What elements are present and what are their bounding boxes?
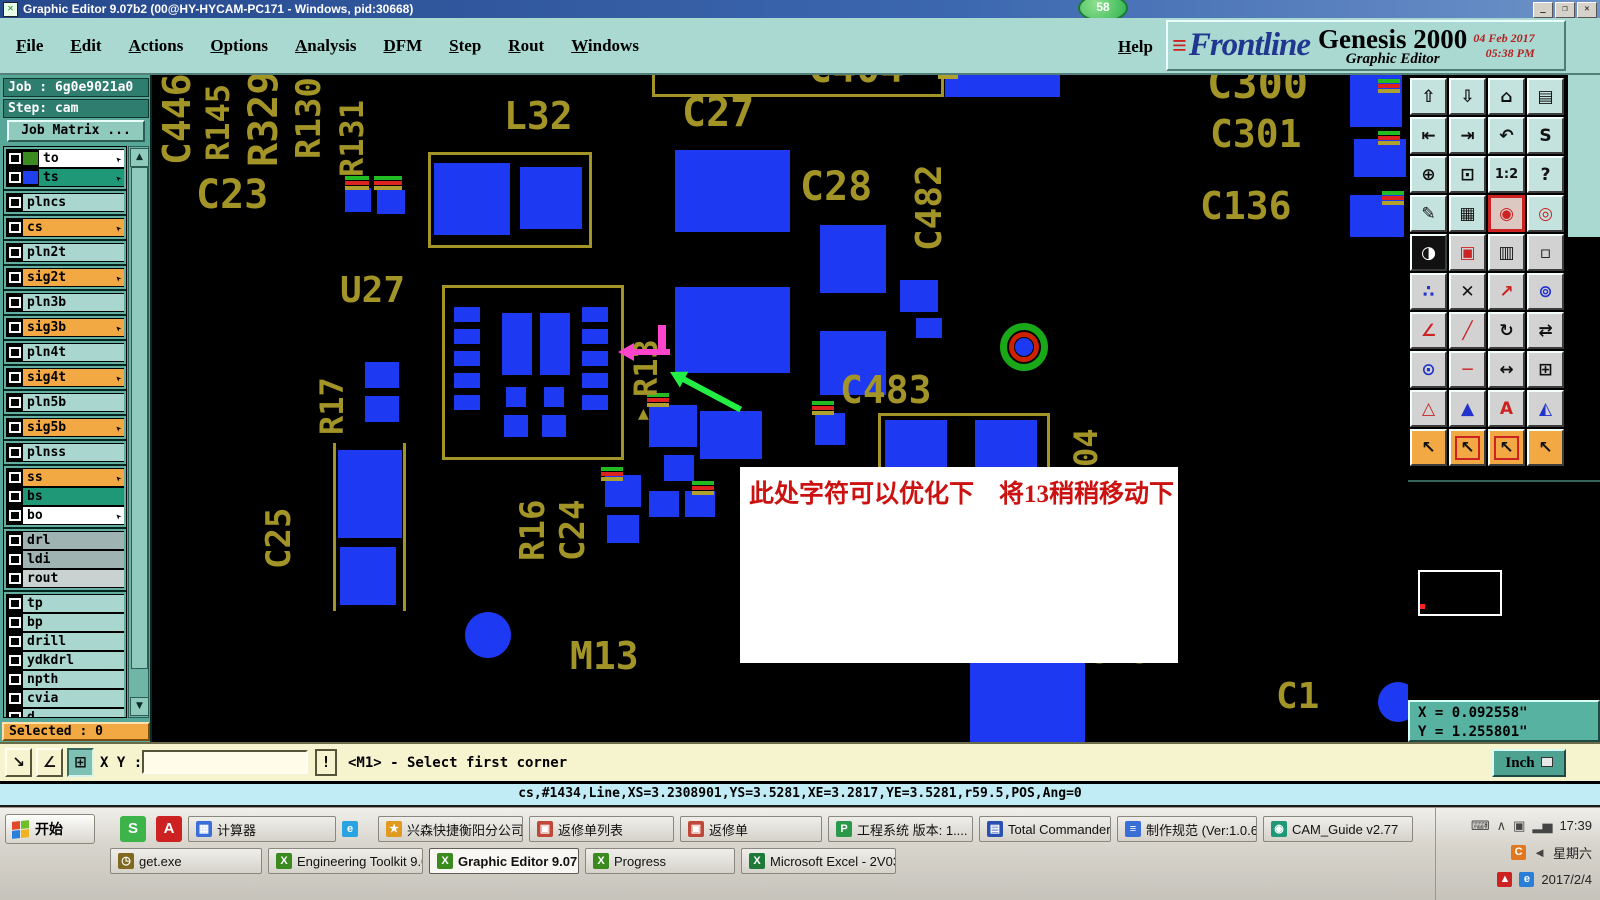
- taskbar-button-fanxiudan[interactable]: ▣返修单: [680, 816, 822, 842]
- measure-angle-button[interactable]: ∠: [36, 748, 63, 777]
- layer-name: cs: [27, 219, 116, 236]
- layer-label: cvia: [23, 690, 124, 707]
- status-bar: cs,#1434,Line,XS=3.2308901,YS=3.5281,XE=…: [0, 781, 1600, 807]
- pcb-pad[interactable]: [916, 318, 942, 338]
- menu-actions[interactable]: Actions: [129, 36, 184, 56]
- layer-label: ldi: [23, 551, 124, 568]
- layer-label: drill: [23, 633, 124, 650]
- layer-row-pln5b[interactable]: pln5b: [6, 393, 124, 412]
- product-name: Genesis 2000: [1318, 24, 1467, 55]
- layer-checkbox[interactable]: [6, 470, 23, 486]
- pcb-pad[interactable]: [454, 307, 480, 322]
- layer-group: to➤ts➤: [4, 147, 126, 189]
- taskbar-button-calculator[interactable]: ▦计算器: [188, 816, 336, 842]
- pcb-pad[interactable]: [454, 329, 480, 344]
- layer-row-sig2t[interactable]: sig2t➤: [6, 268, 124, 287]
- fanxiudan-icon: ▣: [688, 821, 704, 837]
- layer-checkbox[interactable]: [6, 270, 23, 286]
- menu-bar: FileEditActionsOptionsAnalysisDFMStepRou…: [0, 18, 1600, 75]
- layer-checkbox[interactable]: [6, 634, 23, 650]
- layer-checkbox[interactable]: [6, 170, 23, 186]
- pcb-label-04[interactable]: 04: [1070, 411, 1102, 467]
- tray-icon[interactable]: ∧: [1497, 818, 1507, 834]
- menu-step[interactable]: Step: [449, 36, 481, 56]
- tray-date: 2017/2/4: [1541, 872, 1592, 887]
- tray-icon[interactable]: e: [1519, 872, 1534, 887]
- graphic-editor-icon: X: [437, 853, 453, 869]
- layer-group: pln3b: [4, 291, 126, 314]
- layer-checkbox[interactable]: [6, 533, 23, 549]
- quick-launch-s-icon[interactable]: S: [120, 816, 146, 842]
- minimize-button[interactable]: _: [1533, 2, 1553, 18]
- pcb-pad[interactable]: [649, 405, 697, 447]
- net-view-button[interactable]: ◎: [1527, 195, 1564, 232]
- taskbar-button-ie-icon[interactable]: e: [342, 816, 372, 842]
- brand-panel: ≡ Frontline Genesis 2000 Graphic Editor …: [1166, 20, 1566, 71]
- layer-name: pln5b: [27, 394, 124, 411]
- xy-label: X Y :: [100, 755, 142, 771]
- job-matrix-button[interactable]: Job Matrix ...: [7, 120, 145, 142]
- layer-row-rout[interactable]: rout: [6, 569, 124, 588]
- layer-row-plnss[interactable]: plnss: [6, 443, 124, 462]
- layer-label: sig4t➤: [23, 369, 124, 386]
- selection-tick-marks: [692, 481, 714, 496]
- layer-label: sig2t➤: [23, 269, 124, 286]
- app-window: ✕ Graphic Editor 9.07b2 (00@HY-HYCAM-PC1…: [0, 0, 1600, 900]
- taskbar-row: ◷get.exeXEngineering Toolkit 9.07...XGra…: [110, 848, 896, 874]
- angle-measure-button[interactable]: ∠: [1410, 312, 1447, 349]
- pcb-pad[interactable]: [520, 167, 582, 229]
- coordinate-readout: X = 0.092558" Y = 1.255801": [1408, 700, 1600, 742]
- pcb-pad[interactable]: [582, 329, 608, 344]
- current-time: 05:38 PM: [1473, 46, 1534, 61]
- pcb-pad[interactable]: [365, 396, 399, 422]
- measure-distance-button[interactable]: ↔: [1488, 351, 1525, 388]
- pcb-pad[interactable]: [607, 515, 639, 543]
- zoom-area-button[interactable]: ▣: [1449, 234, 1486, 271]
- layer-checkbox[interactable]: [6, 395, 23, 411]
- grid-snap-button[interactable]: ⊞: [67, 748, 94, 777]
- menu-rout[interactable]: Rout: [508, 36, 544, 56]
- layer-label: npth: [23, 671, 124, 688]
- pcb-label-C28[interactable]: C28: [800, 167, 872, 207]
- layer-checkbox[interactable]: [6, 596, 23, 612]
- slope-measure-button[interactable]: ╱: [1449, 312, 1486, 349]
- selection-tick-marks: [345, 176, 369, 191]
- zoom-ratio-1-2-button[interactable]: 1:2: [1488, 156, 1525, 193]
- layer-group: pln5b: [4, 391, 126, 414]
- delete-mode-button[interactable]: ✕: [1449, 273, 1486, 310]
- layer-row-ts[interactable]: ts➤: [6, 168, 124, 187]
- layer-group: ss➤bsbo➤: [4, 466, 126, 527]
- view-left-button[interactable]: ⇤: [1410, 117, 1447, 154]
- layer-row-bs[interactable]: bs: [6, 487, 124, 506]
- layer-row-npth[interactable]: npth: [6, 670, 124, 689]
- layer-checkbox[interactable]: [6, 445, 23, 461]
- menu-windows[interactable]: Windows: [571, 36, 639, 56]
- pcb-pad[interactable]: [675, 287, 790, 373]
- selection-tick-marks: [938, 75, 958, 80]
- selection-tick-marks: [374, 176, 402, 191]
- panel-strip: [1568, 75, 1600, 237]
- taskbar: 开始SA▦计算器e★兴森快捷衡阳分公司...▣返修单列表▣返修单P工程系统 版本…: [0, 807, 1600, 900]
- layer-row-sig5b[interactable]: sig5b➤: [6, 418, 124, 437]
- pcb-label-C23[interactable]: C23: [196, 175, 268, 215]
- pcb-pad[interactable]: [900, 280, 938, 312]
- layer-group: plnss: [4, 441, 126, 464]
- selection-tick-marks: [1378, 131, 1400, 146]
- pcb-label-U27[interactable]: U27: [340, 273, 405, 309]
- layer-color-swatch: [23, 171, 38, 184]
- pcb-pad[interactable]: [506, 387, 526, 407]
- layer-name: ldi: [27, 551, 124, 568]
- pcb-pad[interactable]: [675, 150, 790, 232]
- swap-view-button[interactable]: S: [1527, 117, 1564, 154]
- layer-label: ydkdrl: [23, 652, 124, 669]
- current-date: 04 Feb 2017: [1473, 31, 1534, 46]
- status-text: cs,#1434,Line,XS=3.2308901,YS=3.5281,XE=…: [518, 786, 1082, 801]
- pcb-label-R130[interactable]: R130: [292, 75, 326, 159]
- pcb-pad[interactable]: [820, 225, 886, 293]
- annotation-note: 此处字符可以优化下 将13稍稍移动下: [740, 467, 1178, 663]
- layer-name: ss: [27, 469, 116, 486]
- layer-checkbox[interactable]: [6, 220, 23, 236]
- layer-checkbox[interactable]: [6, 552, 23, 568]
- layer-group: sig5b➤: [4, 416, 126, 439]
- pcb-label-C482[interactable]: C482: [912, 133, 948, 251]
- layer-checkbox[interactable]: [6, 653, 23, 669]
- zoom-fit-all-button[interactable]: ⊕: [1410, 156, 1447, 193]
- frontline-logo: Frontline: [1189, 27, 1310, 64]
- pcb-label-m[interactable]: ▲: [638, 405, 649, 423]
- pcb-pad[interactable]: [540, 313, 570, 375]
- triangle-open-button[interactable]: △: [1410, 390, 1447, 427]
- tray-icon[interactable]: ⌨: [1471, 818, 1490, 834]
- selection-tick-marks: [1378, 79, 1400, 94]
- layer-name: bp: [27, 614, 124, 631]
- pcb-label-C24[interactable]: C24: [556, 483, 590, 561]
- layer-checkbox[interactable]: [6, 195, 23, 211]
- pcb-label-R16[interactable]: R16: [516, 483, 550, 561]
- pcb-pad[interactable]: [975, 420, 1037, 468]
- ie-icon-icon: e: [342, 821, 358, 837]
- calculator-icon: ▦: [196, 821, 212, 837]
- layer-row-pln2t[interactable]: pln2t: [6, 243, 124, 262]
- layer-checkbox[interactable]: [6, 691, 23, 707]
- pcb-label-C136[interactable]: C136: [1200, 187, 1292, 225]
- zoom-center-button[interactable]: ⊡: [1449, 156, 1486, 193]
- zoom-window-button[interactable]: ↘: [5, 748, 32, 777]
- view-up-button[interactable]: ⇧: [1410, 78, 1447, 115]
- taskbar-button-engineering-toolkit[interactable]: XEngineering Toolkit 9.07...: [268, 848, 423, 874]
- layer-label: plncs: [23, 194, 124, 211]
- pcb-label-C404[interactable]: C404: [808, 75, 904, 89]
- triangle-a-button[interactable]: A: [1488, 390, 1525, 427]
- layer-row-cvia[interactable]: cvia: [6, 689, 124, 708]
- zoom-region-indicator[interactable]: [1418, 570, 1502, 616]
- menu-analysis[interactable]: Analysis: [295, 36, 356, 56]
- selected-count: Selected : 0: [2, 722, 150, 741]
- quick-launch-pdf-icon[interactable]: A: [156, 816, 182, 842]
- pcb-pad[interactable]: [582, 395, 608, 410]
- taskbar-button-fanxiudan-list[interactable]: ▣返修单列表: [529, 816, 674, 842]
- progress-icon: X: [593, 853, 609, 869]
- pcb-pad[interactable]: [502, 313, 532, 375]
- pcb-pad[interactable]: [465, 612, 511, 658]
- grid-toggle-button[interactable]: ▦: [1449, 195, 1486, 232]
- triangle-up-button[interactable]: ▲: [1449, 390, 1486, 427]
- layer-row-tp[interactable]: tp: [6, 594, 124, 613]
- layer-group: pln4t: [4, 341, 126, 364]
- taskbar-button-gongcheng-xitong[interactable]: P工程系统 版本: 1....: [828, 816, 973, 842]
- pcb-pad[interactable]: [345, 188, 371, 212]
- close-button[interactable]: ✕: [1577, 2, 1597, 18]
- layer-checkbox[interactable]: [6, 320, 23, 336]
- engineering-toolkit-icon: X: [276, 853, 292, 869]
- layer-checkbox[interactable]: [6, 672, 23, 688]
- cam-guide-icon: ◉: [1271, 821, 1287, 837]
- select-frame-button[interactable]: ↖: [1449, 429, 1486, 466]
- layer-label: pln4t: [23, 344, 124, 361]
- layer-label: bp: [23, 614, 124, 631]
- pcb-pad[interactable]: [454, 395, 480, 410]
- pcb-label-R131[interactable]: R131: [336, 89, 368, 177]
- pcb-pad[interactable]: [365, 362, 399, 388]
- start-button[interactable]: 开始: [5, 814, 95, 844]
- zhizuo-guifan-icon: ≡: [1125, 821, 1141, 837]
- taskbar-button-progress[interactable]: XProgress: [585, 848, 735, 874]
- bw-display-button[interactable]: ◑: [1410, 234, 1447, 271]
- layer-row-to[interactable]: to➤: [6, 149, 124, 168]
- pcb-pad[interactable]: [504, 415, 528, 437]
- layer-checkbox[interactable]: [6, 345, 23, 361]
- layer-name: drl: [27, 532, 124, 549]
- layer-name: sig2t: [27, 269, 116, 286]
- pcb-label-C1[interactable]: C1: [1276, 679, 1319, 715]
- layer-row-sig4t[interactable]: sig4t➤: [6, 368, 124, 387]
- scroll-up-icon[interactable]: ▲: [130, 148, 149, 167]
- pcb-pad[interactable]: [338, 450, 402, 538]
- window-title: Graphic Editor 9.07b2 (00@HY-HYCAM-PC171…: [23, 2, 413, 16]
- layer-checkbox[interactable]: [6, 245, 23, 261]
- pcb-pad[interactable]: [970, 660, 1085, 742]
- taskbar-button-cam-guide[interactable]: ◉CAM_Guide v2.77: [1263, 816, 1413, 842]
- layer-name: sig4t: [27, 369, 116, 386]
- layer-row-bp[interactable]: bp: [6, 613, 124, 632]
- title-bar: ✕ Graphic Editor 9.07b2 (00@HY-HYCAM-PC1…: [0, 0, 1600, 18]
- pcb-label-C25[interactable]: C25: [262, 491, 296, 569]
- step-label: Step: cam: [3, 99, 149, 118]
- layer-checkbox[interactable]: [6, 295, 23, 311]
- layer-name: npth: [27, 671, 124, 688]
- mirror-mode-button[interactable]: ⇄: [1527, 312, 1564, 349]
- pcb-label-C301[interactable]: C301: [1210, 115, 1302, 153]
- layer-name: drill: [27, 633, 124, 650]
- home-view-button[interactable]: ⌂: [1488, 78, 1525, 115]
- view-right-button[interactable]: ⇥: [1449, 117, 1486, 154]
- dropdown-indicator-icon: [1541, 757, 1553, 767]
- measure-ruler-button[interactable]: ▥: [1488, 234, 1525, 271]
- tray-icon[interactable]: C: [1511, 845, 1526, 860]
- command-execute-button[interactable]: !: [315, 749, 337, 776]
- layer-name: plnss: [27, 444, 124, 461]
- selection-tick-marks: [1382, 191, 1404, 206]
- pcb-pad[interactable]: [544, 387, 564, 407]
- pcb-label-R17[interactable]: R17: [316, 359, 348, 435]
- layer-row-ydkdrl[interactable]: ydkdrl: [6, 651, 124, 670]
- layer-row-drill[interactable]: drill: [6, 632, 124, 651]
- pcb-label-C483[interactable]: C483: [840, 371, 932, 409]
- coord-x: X = 0.092558": [1418, 704, 1598, 723]
- taskbar-button-xingsen[interactable]: ★兴森快捷衡阳分公司...: [378, 816, 523, 842]
- menu-options[interactable]: Options: [210, 36, 268, 56]
- layer-row-pln3b[interactable]: pln3b: [6, 293, 124, 312]
- pcb-label-C300[interactable]: C300: [1207, 75, 1308, 105]
- layer-checkbox[interactable]: [6, 420, 23, 436]
- selection-tick-marks: [812, 401, 834, 416]
- taskbar-button-zhizuo-guifan[interactable]: ≡制作规范 (Ver:1.0.6): [1117, 816, 1257, 842]
- layer-name: sig5b: [27, 419, 116, 436]
- setup-tools-button[interactable]: ✎: [1410, 195, 1447, 232]
- layer-checkbox[interactable]: [6, 571, 23, 587]
- layer-checkbox[interactable]: [6, 615, 23, 631]
- selection-tick-marks: [601, 467, 623, 482]
- pcb-pad[interactable]: [582, 307, 608, 322]
- pcb-pad[interactable]: [454, 351, 480, 366]
- scroll-down-icon[interactable]: ▼: [130, 697, 149, 716]
- layer-label: ts➤: [39, 169, 124, 186]
- layer-checkbox[interactable]: [6, 489, 23, 505]
- select-polygon-button[interactable]: ↖: [1488, 429, 1525, 466]
- tray-icon[interactable]: ▂▅: [1532, 818, 1552, 834]
- layer-row-ldi[interactable]: ldi: [6, 550, 124, 569]
- net-highlight-button[interactable]: ◉: [1488, 195, 1525, 232]
- layer-checkbox[interactable]: [6, 151, 23, 167]
- tray-icon[interactable]: ▣: [1513, 818, 1525, 834]
- overview-panel[interactable]: [1408, 480, 1600, 700]
- move-mode-button[interactable]: ↗: [1488, 273, 1525, 310]
- pcb-pad[interactable]: [582, 351, 608, 366]
- tray-day: 星期六: [1553, 843, 1592, 862]
- layer-checkbox[interactable]: [6, 710, 23, 719]
- layer-row-plncs[interactable]: plncs: [6, 193, 124, 212]
- layer-name: pln3b: [27, 294, 124, 311]
- menu-help[interactable]: Help: [1118, 18, 1153, 75]
- layer-label: d: [23, 709, 124, 718]
- taskbar-row: ▦计算器e★兴森快捷衡阳分公司...▣返修单列表▣返修单P工程系统 版本: 1.…: [188, 816, 1413, 842]
- via-pad[interactable]: [1000, 323, 1048, 371]
- layer-group: sig4t➤: [4, 366, 126, 389]
- line-mode-button[interactable]: ─: [1449, 351, 1486, 388]
- connectivity-button[interactable]: ∴: [1410, 273, 1447, 310]
- pcb-label-R145[interactable]: R145: [202, 75, 234, 161]
- copy-mode-button[interactable]: ⊚: [1527, 273, 1564, 310]
- tray-icon[interactable]: ◄: [1533, 845, 1546, 860]
- command-bar: ↘∠⊞ X Y : ! <M1> - Select first corner I…: [0, 742, 1600, 781]
- pcb-pad[interactable]: [815, 413, 845, 445]
- layer-row-drl[interactable]: drl: [6, 531, 124, 550]
- fanxiudan-list-icon: ▣: [537, 821, 553, 837]
- layer-name: to: [43, 150, 116, 167]
- layer-list: to➤ts➤plncscs➤pln2tsig2t➤pln3bsig3b➤pln4…: [3, 146, 127, 718]
- taskbar-button-total-commander[interactable]: ▤Total Commander 7.0 ...: [979, 816, 1111, 842]
- pcb-label-C27[interactable]: C27: [682, 93, 754, 133]
- tray-icon[interactable]: ▲: [1497, 872, 1512, 887]
- reference-box-button[interactable]: ⊞: [1527, 351, 1564, 388]
- pcb-pad[interactable]: [1378, 682, 1408, 722]
- pcb-pad[interactable]: [434, 163, 510, 235]
- layer-row-sig3b[interactable]: sig3b➤: [6, 318, 124, 337]
- pcb-pad[interactable]: [542, 415, 566, 437]
- previous-view-button[interactable]: ↶: [1488, 117, 1525, 154]
- view-down-button[interactable]: ⇩: [1449, 78, 1486, 115]
- pcb-pad[interactable]: [700, 411, 762, 459]
- origin-marker: [1420, 604, 1425, 609]
- help-mode-button[interactable]: ?: [1527, 156, 1564, 193]
- scrollbar-thumb[interactable]: [131, 167, 148, 669]
- select-single-button[interactable]: ↖: [1410, 429, 1447, 466]
- layer-row-bo[interactable]: bo➤: [6, 506, 124, 525]
- pcb-label-M13[interactable]: M13: [570, 637, 639, 675]
- layer-group: tpbpdrillydkdrlnpthcviad: [4, 592, 126, 718]
- pcb-pad[interactable]: [945, 75, 1060, 97]
- pcb-label-R329[interactable]: R329: [244, 75, 284, 167]
- xy-input[interactable]: [142, 750, 308, 774]
- maximize-button[interactable]: ❐: [1555, 2, 1575, 18]
- layer-name: bo: [27, 507, 116, 524]
- pcb-pad[interactable]: [664, 455, 694, 481]
- layer-row-pln4t[interactable]: pln4t: [6, 343, 124, 362]
- taskbar-button-excel[interactable]: XMicrosoft Excel - 2V030K...: [741, 848, 896, 874]
- layer-row-ss[interactable]: ss➤: [6, 468, 124, 487]
- layer-row-d[interactable]: d: [6, 708, 124, 718]
- layer-label: plnss: [23, 444, 124, 461]
- layer-checkbox[interactable]: [6, 370, 23, 386]
- menu-edit[interactable]: Edit: [70, 36, 101, 56]
- layer-label: tp: [23, 595, 124, 612]
- taskbar-button-graphic-editor[interactable]: XGraphic Editor 9.07b2 ...: [429, 848, 579, 874]
- layer-row-cs[interactable]: cs➤: [6, 218, 124, 237]
- pcb-label-C446[interactable]: C446: [158, 75, 196, 165]
- tray-time: 17:39: [1559, 818, 1592, 833]
- layer-name: plncs: [27, 194, 124, 211]
- layer-color-swatch: [23, 152, 38, 165]
- triangle-side-button[interactable]: ◭: [1527, 390, 1564, 427]
- pad-swap-button[interactable]: ⊙: [1410, 351, 1447, 388]
- pcb-canvas[interactable]: C446R145R329C23R130R131L32C27C404C28C482…: [152, 75, 1408, 742]
- pcb-pad[interactable]: [885, 420, 947, 468]
- select-area-button[interactable]: ▫: [1527, 234, 1564, 271]
- layer-list-scrollbar[interactable]: ▲ ▼: [128, 146, 149, 718]
- pcb-pad[interactable]: [454, 373, 480, 388]
- rotate-mode-button[interactable]: ↻: [1488, 312, 1525, 349]
- app-icon: ✕: [3, 2, 18, 17]
- pcb-label-L32[interactable]: L32: [504, 97, 573, 135]
- select-net-button[interactable]: ↖: [1527, 429, 1564, 466]
- menu-dfm[interactable]: DFM: [383, 36, 422, 56]
- pcb-pad[interactable]: [377, 190, 405, 214]
- units-dropdown[interactable]: Inch: [1492, 749, 1566, 777]
- pcb-pad[interactable]: [582, 373, 608, 388]
- taskbar-button-get-exe[interactable]: ◷get.exe: [110, 848, 262, 874]
- layer-name: sig3b: [27, 319, 116, 336]
- layer-checkbox[interactable]: [6, 508, 23, 524]
- pcb-pad[interactable]: [340, 547, 396, 605]
- tile-windows-button[interactable]: ▤: [1527, 78, 1564, 115]
- menu-file[interactable]: File: [16, 36, 43, 56]
- pcb-pad[interactable]: [649, 491, 679, 517]
- layer-name: pln2t: [27, 244, 124, 261]
